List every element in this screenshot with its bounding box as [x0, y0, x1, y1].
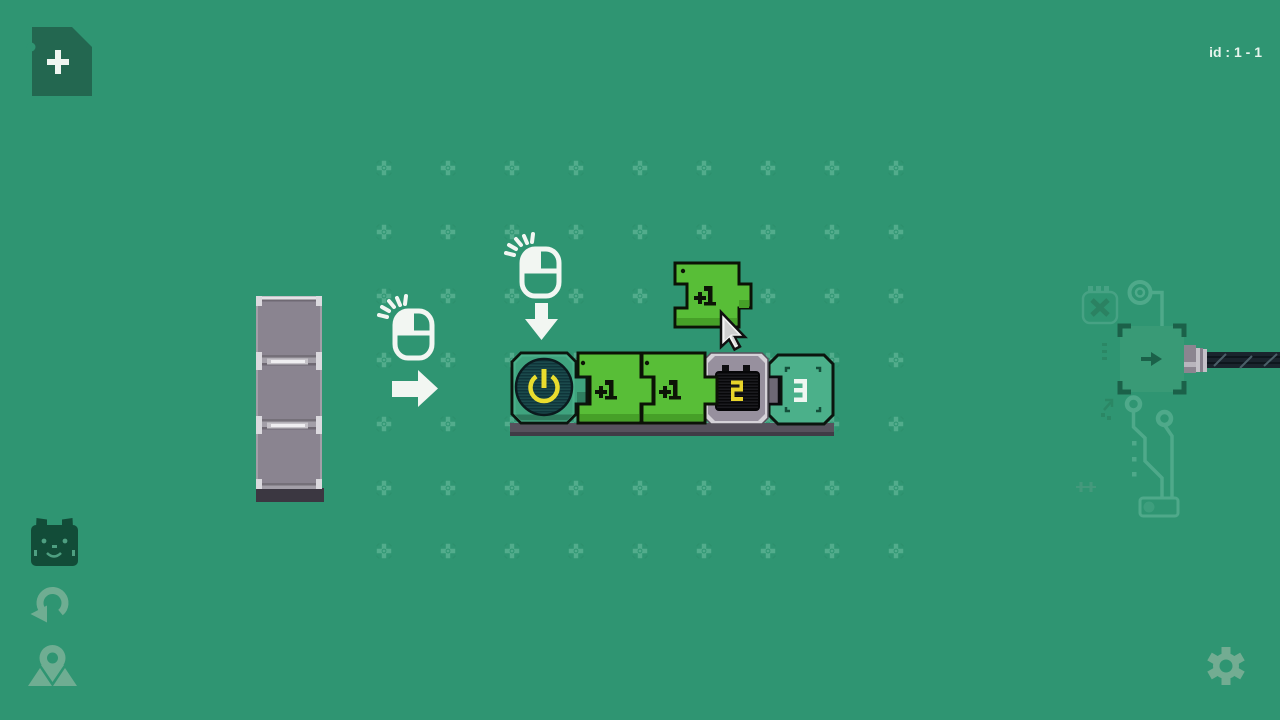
svg-text:id : 1 - 1: id : 1 - 1: [1209, 44, 1262, 60]
